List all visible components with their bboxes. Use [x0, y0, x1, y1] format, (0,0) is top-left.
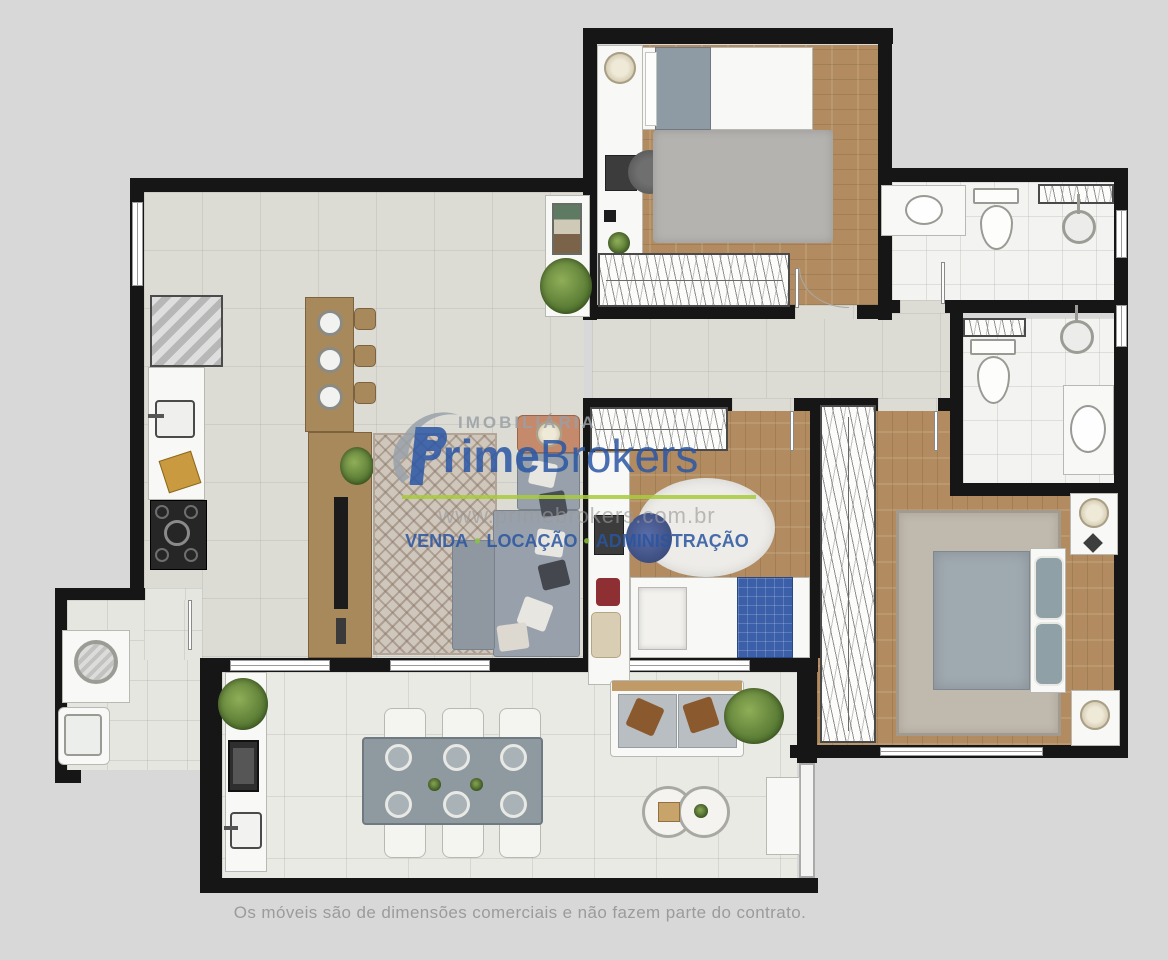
floorplan-canvas: IMOBILIÁRIA PrimeBrokers www.primebroker… — [0, 0, 1168, 960]
kitchen-faucet-icon — [148, 414, 164, 418]
dining-chair-5 — [442, 822, 484, 858]
wall-balcony-bottom — [200, 878, 818, 893]
nightstand-bottom-lamp-icon — [1080, 700, 1110, 730]
wall-service-top — [55, 588, 145, 600]
console-decor-icon — [336, 618, 346, 644]
bedroom2-bench-icon — [591, 612, 621, 658]
master-pillow-1 — [1034, 556, 1064, 620]
bedroom1-wardrobe-icon — [598, 253, 790, 307]
bbq-sink-icon — [230, 812, 262, 849]
service-passage-floor — [144, 590, 202, 660]
watermark-green-underline — [402, 495, 756, 499]
dining-centerpiece-1 — [428, 778, 441, 791]
plate-2-icon — [317, 347, 343, 373]
living-glass-door2 — [390, 660, 490, 671]
watermark-brand: PrimeBrokers — [412, 429, 698, 483]
wall-service-corner — [55, 770, 81, 783]
bedroom2-red-chair-icon — [596, 578, 620, 606]
kitchen-window — [132, 202, 143, 286]
dining-plate-2 — [443, 744, 470, 771]
bath1-door-gap — [900, 300, 945, 313]
wall-main-top — [130, 178, 597, 192]
master-bed-duvet — [933, 551, 1030, 690]
bath1-toilet-tank-icon — [973, 188, 1019, 204]
dining-plate-3 — [500, 744, 527, 771]
bedroom1-lamp-icon — [604, 52, 636, 84]
bath2-window — [1116, 305, 1127, 347]
service-bullet-1: • — [474, 531, 480, 551]
stove-burner-3 — [155, 548, 169, 562]
stove-burner-2 — [184, 505, 198, 519]
suite-closet-icon — [820, 405, 876, 743]
disclaimer-text: Os móveis são de dimensões comerciais e … — [0, 903, 1040, 923]
dining-plate-1 — [385, 744, 412, 771]
suite-door-gap — [878, 398, 938, 411]
service-administracao: ADMINISTRAÇÃO — [596, 531, 749, 551]
master-pillow-2 — [1034, 622, 1064, 686]
service-venda: VENDA — [405, 531, 468, 551]
watermark-website: www.primebrokers.com.br — [388, 503, 766, 529]
dining-plate-5 — [443, 791, 470, 818]
bath1-shower-arm — [1077, 194, 1080, 214]
wall-balcony-left — [200, 658, 222, 893]
stove-burner-1 — [155, 505, 169, 519]
balcony-railing — [799, 763, 815, 878]
balcony-plant-left-icon — [218, 678, 268, 730]
sofa-pillow-6 — [496, 622, 529, 652]
fridge-icon — [150, 295, 223, 367]
brand-prime: Prime — [412, 430, 540, 482]
suite-door — [934, 411, 938, 451]
grill-grate-icon — [233, 748, 254, 784]
laundry-basin-icon — [64, 714, 102, 756]
plate-3-icon — [317, 384, 343, 410]
bedroom1-door — [795, 268, 799, 308]
dining-plate-4 — [385, 791, 412, 818]
kitchen-sink-icon — [155, 400, 195, 438]
service-bullet-2: • — [584, 531, 590, 551]
bbq-faucet-icon — [224, 826, 238, 830]
dining-chair-6 — [499, 822, 541, 858]
service-door-gap — [145, 588, 202, 600]
wall-bath1-top — [878, 168, 1128, 182]
bath1-sink-icon — [905, 195, 943, 225]
bath2-shower-head-icon — [1060, 320, 1094, 354]
outdoor-sofa-back — [612, 681, 742, 691]
stool-3-icon — [354, 382, 376, 404]
dining-chair-4 — [384, 822, 426, 858]
coffee-table-plant-icon — [694, 804, 708, 818]
stool-1-icon — [354, 308, 376, 330]
washer-drum-icon — [74, 640, 118, 684]
bedroom1-plant-icon — [608, 232, 630, 254]
living-glass-door — [230, 660, 330, 671]
plate-1-icon — [317, 310, 343, 336]
hall-art-icon — [552, 203, 582, 255]
dining-plate-6 — [500, 791, 527, 818]
master-window — [880, 747, 1043, 756]
bedroom2-blanket-icon — [737, 577, 793, 658]
wall-bedroom1-top — [583, 28, 893, 44]
bedroom2-pillow — [638, 587, 687, 650]
coffee-table-tray-icon — [658, 802, 680, 822]
balcony-plant-right-icon — [724, 688, 784, 744]
bedroom2-window — [611, 660, 750, 671]
hall-plant-icon — [540, 258, 592, 314]
bath2-towel-rack-icon — [963, 318, 1026, 337]
bath1-shower-head-icon — [1062, 210, 1096, 244]
dining-centerpiece-2 — [470, 778, 483, 791]
ac-unit-icon — [766, 777, 800, 855]
service-locacao: LOCAÇÃO — [487, 531, 578, 551]
nightstand-top-lamp-icon — [1079, 498, 1109, 528]
bath2-toilet-tank-icon — [970, 339, 1016, 355]
tv-icon — [334, 497, 348, 609]
brand-brokers: Brokers — [540, 430, 698, 482]
bedroom2-door — [790, 411, 794, 451]
bath1-towel-rack-icon — [1038, 184, 1114, 204]
bedroom1-speaker-icon — [604, 210, 616, 222]
console-plant-icon — [340, 447, 374, 485]
bedroom1-rug-icon — [653, 130, 833, 243]
stool-2-icon — [354, 345, 376, 367]
bath2-sink-icon — [1070, 405, 1106, 453]
bath1-window — [1116, 210, 1127, 258]
stove-burner-4 — [184, 548, 198, 562]
bath1-door — [941, 262, 945, 304]
watermark: IMOBILIÁRIA PrimeBrokers www.primebroker… — [388, 405, 766, 563]
stove-burner-center — [164, 520, 190, 546]
watermark-services: VENDA•LOCAÇÃO•ADMINISTRAÇÃO — [388, 531, 766, 552]
bedroom1-bed-pillow — [645, 52, 657, 126]
hall-floor — [592, 313, 952, 399]
bath2-shower-arm — [1075, 305, 1078, 323]
service-door — [188, 600, 192, 650]
bedroom1-bed-duvet — [655, 47, 711, 130]
